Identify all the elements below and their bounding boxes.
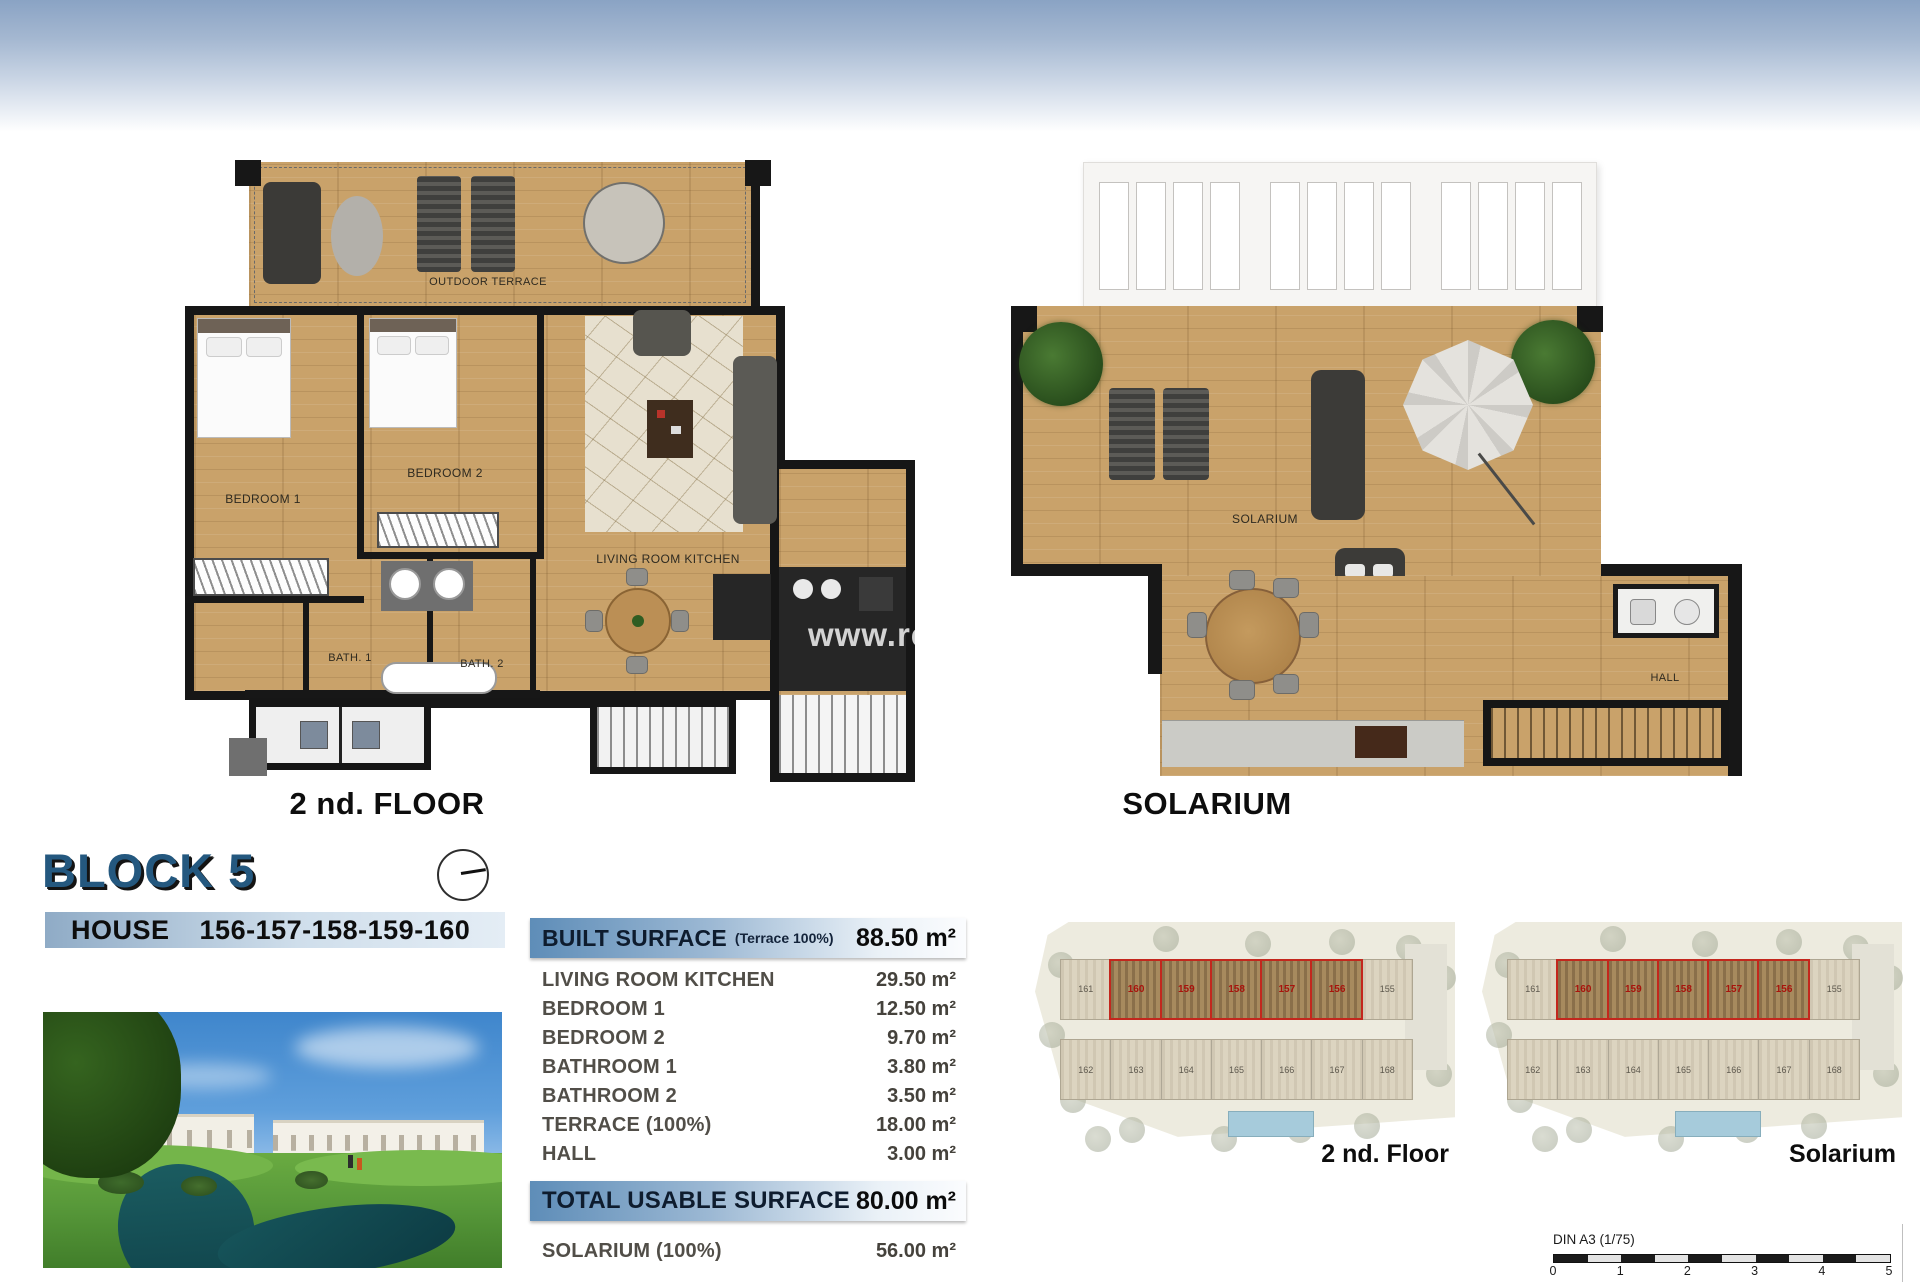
chair [1229, 570, 1255, 590]
watermark: www.re [808, 616, 930, 654]
bottom-wall [431, 700, 593, 708]
bush [295, 1171, 327, 1189]
built-surface-value: 88.50 m² [856, 924, 956, 953]
scale-segment [1823, 1255, 1857, 1262]
interior-wall [537, 306, 544, 558]
surface-row: BEDROOM 29.70 m² [530, 1024, 966, 1053]
headboard [198, 319, 290, 333]
pool [1675, 1111, 1761, 1137]
interior-wall [185, 596, 364, 603]
surface-row-label: BATHROOM 1 [542, 1056, 677, 1079]
unit-cell: 165 [1211, 1040, 1261, 1099]
total-surface-value: 80.00 m² [856, 1187, 956, 1216]
room-label-hall: HALL [1605, 672, 1725, 684]
sun-lounger [417, 176, 461, 272]
pergola-slat [1552, 182, 1582, 290]
unit-cell: 167 [1311, 1040, 1361, 1099]
pergola-slat [1441, 182, 1471, 290]
deck-wall [1011, 306, 1023, 576]
pillow [415, 336, 449, 355]
siteplan-canvas: 1611601591581571561551621631641651661671… [1035, 922, 1455, 1139]
coffee-table [647, 400, 693, 458]
built-surface-label: BUILT SURFACE [542, 925, 727, 952]
scale-segment [1789, 1255, 1823, 1262]
doormat [1355, 726, 1407, 758]
deck-wall [1728, 564, 1742, 776]
chair [626, 568, 648, 586]
wall-post [1577, 306, 1603, 332]
unit-cell: 163 [1557, 1040, 1607, 1099]
siteplan-unit-row-bottom: 162163164165166167168 [1060, 1039, 1413, 1100]
siteplan-solarium: 1611601591581571561551621631641651661671… [1482, 922, 1902, 1169]
solarium-surface-label: SOLARIUM (100%) [542, 1240, 722, 1263]
pergola-slat [1173, 182, 1203, 290]
scale-segment [1756, 1255, 1790, 1262]
golfer [357, 1158, 362, 1170]
unit-cell: 157 [1708, 960, 1758, 1019]
terrace-side-wall [751, 162, 760, 308]
pergola-slat [1210, 182, 1240, 290]
tree [1119, 1117, 1145, 1143]
resort-photo [43, 1012, 502, 1268]
wall-post [1011, 306, 1037, 332]
headboard [370, 319, 456, 332]
surface-row-label: BEDROOM 2 [542, 1027, 665, 1050]
chair [1299, 612, 1319, 638]
unit-cell: 160 [1557, 960, 1607, 1019]
scale-tick: 4 [1818, 1264, 1825, 1278]
unit-cell: 156 [1311, 960, 1361, 1019]
scale-bar-label: DIN A3 (1/75) [1553, 1232, 1891, 1247]
kitchen-sink [793, 579, 813, 599]
unit-cell: 168 [1809, 1040, 1859, 1099]
pergola [1083, 162, 1597, 310]
surface-row: LIVING ROOM KITCHEN29.50 m² [530, 966, 966, 995]
unit-cell: 161 [1061, 960, 1110, 1019]
room-label-bath2: BATH. 2 [437, 658, 527, 670]
surface-row-value: 18.00 m² [876, 1114, 956, 1137]
chair [1187, 612, 1207, 638]
unit-cell: 166 [1261, 1040, 1311, 1099]
unit-cell: 162 [1508, 1040, 1557, 1099]
unit-cell: 164 [1161, 1040, 1211, 1099]
round-dining-table [1205, 588, 1301, 684]
stairs [590, 700, 736, 774]
siteplan-caption: 2 nd. Floor [1321, 1140, 1449, 1169]
compass-needle [461, 868, 486, 875]
sink [389, 568, 421, 600]
surface-row: BATHROOM 13.80 m² [530, 1053, 966, 1082]
interior-wall [357, 552, 544, 559]
surface-row-label: BEDROOM 1 [542, 998, 665, 1021]
tree [1532, 1126, 1558, 1152]
chair [1273, 578, 1299, 598]
solarium-surface-row: SOLARIUM (100%) 56.00 m² [530, 1237, 966, 1266]
siteplan-unit-row-bottom: 162163164165166167168 [1507, 1039, 1860, 1100]
golfer [348, 1155, 353, 1168]
scale-segment [1856, 1255, 1890, 1262]
unit-cell: 155 [1362, 960, 1412, 1019]
surface-row-value: 12.50 m² [876, 998, 956, 1021]
siteplan-2nd-floor: 1611601591581571561551621631641651661671… [1035, 922, 1455, 1169]
tree [1600, 926, 1626, 952]
siteplan-ground [1035, 922, 1455, 1139]
tree [1085, 1126, 1111, 1152]
surface-row-label: HALL [542, 1143, 596, 1166]
sky-gradient-band [0, 0, 1920, 132]
house-label: HOUSE [71, 915, 170, 946]
plant-icon [1019, 322, 1103, 406]
pillow [246, 337, 282, 357]
wall-post [235, 160, 261, 186]
pergola-slat [1136, 182, 1166, 290]
total-surface-label: TOTAL USABLE SURFACE [542, 1187, 850, 1215]
sun-lounger [1109, 388, 1155, 480]
washer [352, 721, 380, 749]
tree [1153, 926, 1179, 952]
room-label-solarium: SOLARIUM [1180, 512, 1350, 526]
caption-2nd-floor: 2 nd. FLOOR [262, 786, 512, 822]
pergola-slat [1099, 182, 1129, 290]
room-label-outdoor-terrace: OUTDOOR TERRACE [358, 276, 618, 288]
unit-cell: 157 [1261, 960, 1311, 1019]
scale-tick: 1 [1617, 1264, 1624, 1278]
sun-lounger [1163, 388, 1209, 480]
decor [671, 426, 681, 434]
tree [1692, 931, 1718, 957]
wardrobe [377, 512, 499, 548]
sink [1630, 599, 1656, 625]
block-title: BLOCK 5 [42, 843, 255, 898]
caption-solarium: SOLARIUM [1082, 786, 1332, 822]
stairs [779, 695, 906, 773]
scale-bar-segments [1553, 1254, 1891, 1263]
terrace-table [583, 182, 665, 264]
concrete-strip [1162, 720, 1464, 767]
solarium-plan: SOLARIUM HALL [1005, 160, 1750, 785]
chair [1273, 674, 1299, 694]
surface-row-label: BATHROOM 2 [542, 1085, 677, 1108]
surface-row-value: 29.50 m² [876, 969, 956, 992]
house-bar: HOUSE 156-157-158-159-160 [45, 912, 505, 948]
unit-cell: 168 [1362, 1040, 1412, 1099]
deck-wall [1011, 564, 1162, 576]
surface-row-value: 3.00 m² [887, 1143, 956, 1166]
room-label-bedroom2: BEDROOM 2 [385, 466, 505, 480]
tree [1354, 1113, 1380, 1139]
sink [1674, 599, 1700, 625]
total-surface-bar: TOTAL USABLE SURFACE 80.00 m² [530, 1181, 966, 1221]
pergola-slat [1515, 182, 1545, 290]
surface-row: BEDROOM 112.50 m² [530, 995, 966, 1024]
surface-table: BUILT SURFACE (Terrace 100%) 88.50 m² LI… [530, 918, 966, 1266]
scale-segment [1588, 1255, 1622, 1262]
chair [671, 610, 689, 632]
decor [657, 410, 665, 418]
deck-wall [1601, 564, 1742, 576]
chair [1229, 680, 1255, 700]
siteplan-caption: Solarium [1789, 1140, 1896, 1169]
floor-plan-2nd-floor: OUTDOOR TERRACE BEDROOM 1 BEDROOM 2 [185, 160, 915, 785]
bed [197, 318, 291, 438]
pergola-slat-group [1270, 182, 1411, 290]
built-surface-note: (Terrace 100%) [735, 930, 834, 946]
tree [1566, 1117, 1592, 1143]
solarium-surface-value: 56.00 m² [876, 1240, 956, 1263]
unit-cell: 163 [1110, 1040, 1160, 1099]
sun-lounger [471, 176, 515, 272]
pergola-slat [1344, 182, 1374, 290]
washer [300, 721, 328, 749]
pergola-slat-group [1441, 182, 1582, 290]
tree [1329, 929, 1355, 955]
compass-icon [437, 849, 489, 901]
surface-row-value: 9.70 m² [887, 1027, 956, 1050]
siteplan-ground [1482, 922, 1902, 1139]
sofa [733, 356, 777, 524]
scale-segment [1554, 1255, 1588, 1262]
pillow [206, 337, 242, 357]
scale-segment [1655, 1255, 1689, 1262]
surface-row: TERRACE (100%)18.00 m² [530, 1111, 966, 1140]
unit-cell: 159 [1161, 960, 1211, 1019]
stairs [1483, 700, 1729, 766]
kitchen-block [713, 574, 771, 640]
siteplan-unit-row-top: 161160159158157156155 [1060, 959, 1413, 1020]
kitchen-hob [859, 577, 893, 611]
siteplan-canvas: 1611601591581571561551621631641651661671… [1482, 922, 1902, 1139]
plant-icon [632, 615, 644, 627]
siteplan-unit-row-top: 161160159158157156155 [1507, 959, 1860, 1020]
sofa [1311, 370, 1365, 520]
room-label-bedroom1: BEDROOM 1 [203, 492, 323, 506]
scale-segment [1688, 1255, 1722, 1262]
terrace-rug [331, 196, 383, 276]
scale-segment [1621, 1255, 1655, 1262]
pergola-slat [1307, 182, 1337, 290]
tree [1776, 929, 1802, 955]
built-surface-header: BUILT SURFACE (Terrace 100%) 88.50 m² [530, 918, 966, 958]
house-numbers: 156-157-158-159-160 [200, 915, 471, 946]
surface-row-value: 3.50 m² [887, 1085, 956, 1108]
room-label-living: LIVING ROOM KITCHEN [573, 552, 763, 566]
surface-row: HALL3.00 m² [530, 1140, 966, 1169]
corner-block [229, 738, 267, 776]
pergola-slat [1381, 182, 1411, 290]
wardrobe [193, 558, 329, 596]
surface-rows: LIVING ROOM KITCHEN29.50 m²BEDROOM 112.5… [530, 966, 966, 1169]
sink [433, 568, 465, 600]
unit-cell: 155 [1809, 960, 1859, 1019]
scale-tick: 3 [1751, 1264, 1758, 1278]
unit-cell: 162 [1061, 1040, 1110, 1099]
unit-cell: 160 [1110, 960, 1160, 1019]
chair [585, 610, 603, 632]
surface-row-label: LIVING ROOM KITCHEN [542, 969, 775, 992]
surface-row: BATHROOM 23.50 m² [530, 1082, 966, 1111]
unit-cell: 165 [1658, 1040, 1708, 1099]
interior-wall [530, 559, 536, 695]
pergola-slat-group [1099, 182, 1240, 290]
unit-cell: 166 [1708, 1040, 1758, 1099]
page-edge-mark [1902, 1224, 1903, 1282]
kitchenette [1613, 584, 1719, 638]
armchair [633, 310, 691, 356]
pergola-slat [1270, 182, 1300, 290]
room-label-bath1: BATH. 1 [305, 652, 395, 664]
scale-tick: 5 [1886, 1264, 1893, 1278]
surface-row-label: TERRACE (100%) [542, 1114, 712, 1137]
kitchen-sink [821, 579, 841, 599]
scale-tick: 0 [1550, 1264, 1557, 1278]
divider [339, 707, 342, 763]
pool [1228, 1111, 1314, 1137]
scale-tick: 2 [1684, 1264, 1691, 1278]
utility-room [249, 700, 431, 770]
surface-row-value: 3.80 m² [887, 1056, 956, 1079]
terrace-sofa [263, 182, 321, 284]
deck-wall [1148, 564, 1162, 674]
unit-cell: 156 [1758, 960, 1808, 1019]
unit-cell: 158 [1658, 960, 1708, 1019]
scale-bar-ticks: 012345 [1553, 1264, 1889, 1280]
unit-cell: 167 [1758, 1040, 1808, 1099]
unit-cell: 159 [1608, 960, 1658, 1019]
scale-segment [1722, 1255, 1756, 1262]
chair [626, 656, 648, 674]
tree [1245, 931, 1271, 957]
unit-cell: 158 [1211, 960, 1261, 1019]
umbrella [1403, 340, 1533, 470]
dining-table [605, 588, 671, 654]
unit-cell: 161 [1508, 960, 1557, 1019]
unit-cell: 164 [1608, 1040, 1658, 1099]
pergola-slat [1478, 182, 1508, 290]
bed [369, 318, 457, 428]
interior-wall [357, 306, 364, 558]
pillow [377, 336, 411, 355]
tree [1801, 1113, 1827, 1139]
scale-bar: DIN A3 (1/75) 012345 [1553, 1232, 1891, 1282]
